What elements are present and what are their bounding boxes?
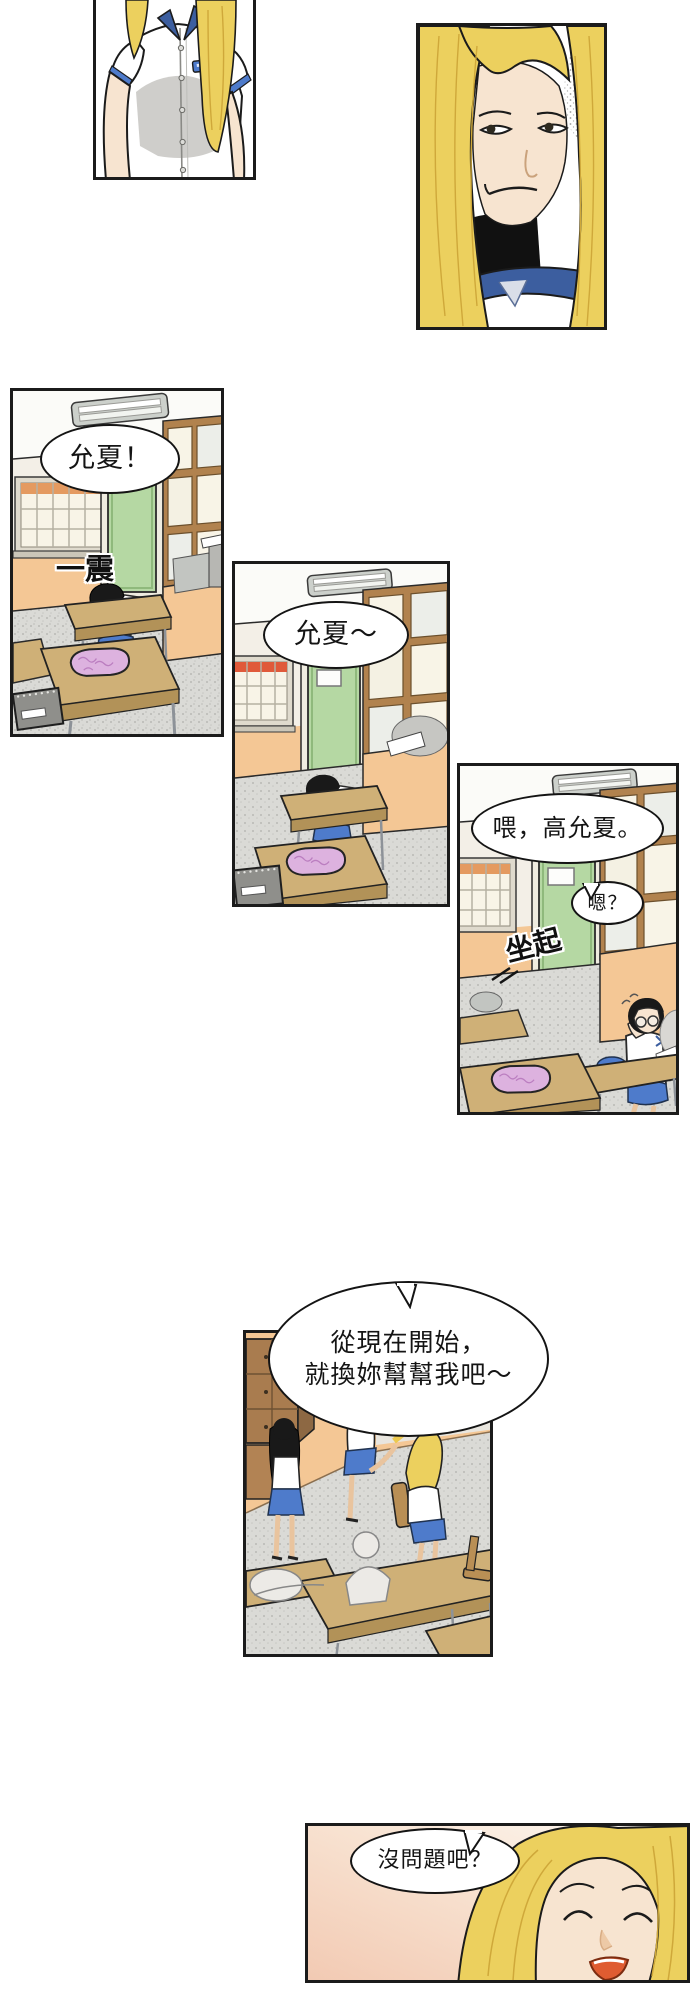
panel-blonde-smirk [416,23,607,330]
panel-classroom-call: 允夏～ [232,561,450,907]
speech-text: 允夏～ [294,617,378,652]
speech-bubble: 從現在開始，就換妳幫幫我吧～ [268,1281,549,1437]
spiral-notebook [13,688,63,730]
blonde-face-art [419,26,604,327]
speech-bubble: 允夏～ [263,601,409,669]
panel-uniform-torso [93,0,256,180]
speech-text: 從現在開始，就換妳幫幫我吧～ [304,1327,512,1392]
speech-text: 喂，高允夏。 [493,813,643,844]
face [473,62,567,226]
left-window [235,656,295,732]
left-eye [487,125,496,134]
panel-classroom-sleep: 允夏！ 一震 [10,388,224,737]
right-eye [545,123,554,132]
speech-bubble: 沒問題吧？ [350,1828,520,1894]
comic-page: 允夏！ 一震 [0,0,690,2000]
bubble-tail [581,883,601,901]
bubble-tail [394,1283,418,1309]
bubble-tail [460,1830,486,1856]
motion-dashes [488,962,522,984]
glasses [636,1017,646,1027]
spiral-notebook [235,866,283,904]
panel-window-chat: 從現在開始，就換妳幫幫我吧～ [243,1330,493,1657]
panel-wake-up: 喂，高允夏。 嗯？ 坐起 [457,763,679,1115]
left-window [460,858,516,932]
speech-bubble: 允夏！ [40,424,180,494]
reply-bubble: 嗯？ [571,881,644,925]
speech-text: 允夏！ [68,441,152,476]
speech-bubble: 喂，高允夏。 [471,793,664,864]
sfx-text: 一震 [56,546,114,588]
left-arm [104,72,130,177]
uniform-torso-art [96,0,253,177]
panel-no-problem: 沒問題吧？ [305,1823,690,1983]
